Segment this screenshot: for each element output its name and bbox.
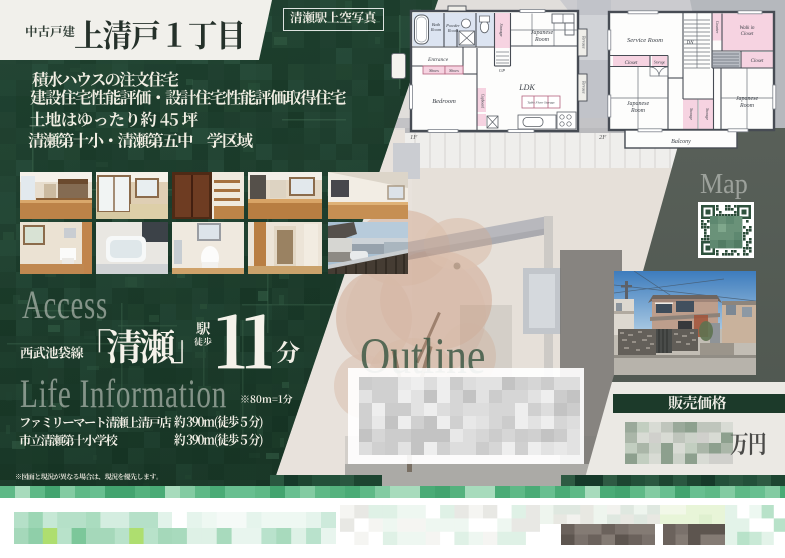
svg-text:Japanese: Japanese <box>627 101 650 107</box>
svg-text:Room: Room <box>534 37 550 43</box>
svg-text:Terrace: Terrace <box>582 36 587 49</box>
svg-text:Storage: Storage <box>499 23 504 36</box>
svg-text:Closet: Closet <box>751 59 764 64</box>
svg-text:Bedroom: Bedroom <box>432 98 456 105</box>
svg-text:UP: UP <box>499 68 505 73</box>
svg-text:Shoes: Shoes <box>429 68 439 73</box>
svg-text:Storage: Storage <box>654 61 666 65</box>
svg-text:2F: 2F <box>599 134 607 141</box>
svg-text:Service Room: Service Room <box>627 37 663 44</box>
svg-text:Japanese: Japanese <box>531 30 554 36</box>
svg-text:Shoes: Shoes <box>449 68 459 73</box>
svg-text:Walk in: Walk in <box>740 26 755 31</box>
svg-text:Storage: Storage <box>689 108 693 120</box>
svg-text:Closet: Closet <box>741 32 754 37</box>
svg-text:Balcony: Balcony <box>671 139 691 145</box>
svg-text:Table Floor Storage: Table Floor Storage <box>527 101 555 105</box>
svg-text:Room: Room <box>739 103 755 109</box>
svg-text:Terrace: Terrace <box>582 81 587 94</box>
svg-text:Entrance: Entrance <box>427 57 449 63</box>
svg-text:Room: Room <box>630 108 646 114</box>
svg-text:1F: 1F <box>410 134 418 141</box>
svg-text:Storage: Storage <box>705 108 709 120</box>
svg-text:LDK: LDK <box>518 83 535 92</box>
svg-text:DN: DN <box>686 41 695 46</box>
svg-text:Room: Room <box>430 27 441 32</box>
svg-text:Counter: Counter <box>715 21 719 34</box>
svg-text:Room: Room <box>447 28 458 33</box>
svg-text:Cupboard: Cupboard <box>481 94 485 109</box>
svg-text:Japanese: Japanese <box>736 96 759 102</box>
svg-text:Closet: Closet <box>625 61 638 66</box>
